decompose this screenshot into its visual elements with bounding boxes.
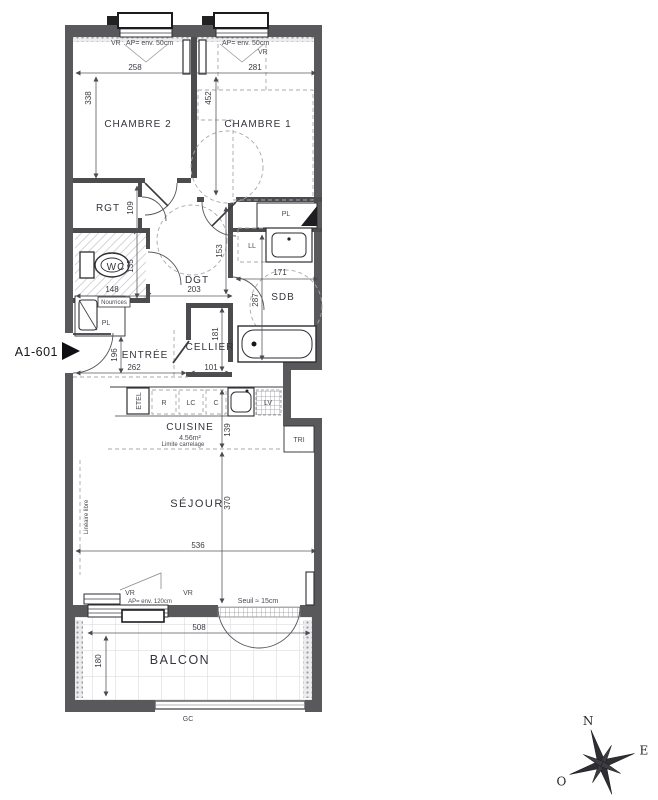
- label-balcon: BALCON: [150, 653, 210, 667]
- wall-bottom-3: [300, 605, 322, 617]
- dim-sejour-width: 536: [191, 541, 205, 550]
- rolling-shutter-box-right: [214, 13, 268, 28]
- label-chambre2: CHAMBRE 2: [104, 119, 171, 130]
- window-tilt-symbol: [120, 573, 161, 590]
- label-cuisine-area: 4.56m²: [179, 435, 201, 442]
- label-lv: LV: [264, 400, 272, 407]
- dim-entree-depth: 196: [110, 348, 119, 362]
- door-leaf-chambre2: [183, 40, 190, 74]
- dim-wc-width: 148: [105, 285, 119, 294]
- dim-entree-width: 262: [127, 363, 141, 372]
- compass-rose: N E O S: [537, 698, 658, 800]
- turning-circle-chambre1: [191, 131, 263, 203]
- dim-balcon-width: 508: [192, 623, 206, 632]
- balcony-wall-bottom-right: [305, 700, 322, 712]
- dim-wc-depth: 135: [126, 259, 135, 273]
- door-leaf-chambre1: [199, 40, 206, 74]
- balcony-door-threshold: [218, 607, 300, 617]
- label-seuil: Seuil ≈ 15cm: [238, 598, 279, 605]
- wall-top-1: [65, 25, 120, 37]
- label-fridge: R: [161, 400, 166, 407]
- door-arc-wc: [148, 252, 181, 285]
- wall-left-upper: [65, 25, 73, 333]
- unit-tag: A1-601: [15, 342, 80, 360]
- wall-left-lower: [65, 373, 73, 617]
- dim-dgt-depth: 153: [215, 244, 224, 258]
- label-lineaire-libre: Linéaire libre: [84, 499, 90, 534]
- dim-chambre2-depth: 338: [84, 91, 93, 105]
- label-wc: WC: [107, 262, 126, 273]
- label-ap50-right: AP= env. 50cm: [222, 40, 269, 47]
- label-vr1: VR: [111, 40, 121, 47]
- window-sill-box: [122, 610, 164, 622]
- label-ap120: AP= env. 120cm: [128, 599, 172, 605]
- washbasin: [272, 233, 306, 257]
- dim-chambre1-depth: 452: [204, 91, 213, 105]
- toilet-tank: [80, 252, 94, 278]
- wall-notch-left: [283, 362, 291, 426]
- dim-chambre2-width: 258: [128, 63, 142, 72]
- label-ll: LL: [248, 243, 256, 250]
- wall-bottom-1: [65, 605, 88, 617]
- dim-rgt-depth: 109: [126, 201, 135, 215]
- turning-circle-dgt: [157, 205, 227, 275]
- compass-o: O: [556, 774, 566, 788]
- dim-sdb-width: 171: [273, 268, 287, 277]
- shutter-end-cap-left: [107, 16, 118, 25]
- washbasin-drain: [287, 237, 290, 240]
- label-vr3: VR: [125, 590, 135, 597]
- label-entree: ENTRÉE: [122, 348, 169, 361]
- dim-balcon-depth: 180: [94, 654, 103, 668]
- label-chambre1: CHAMBRE 1: [224, 119, 291, 130]
- label-pl-entree: PL: [102, 320, 111, 327]
- dim-cuisine-depth: 139: [223, 423, 232, 437]
- balcony-wall-left-insulation: [75, 620, 83, 698]
- label-ap50-left: AP= env. 50cm: [126, 40, 173, 47]
- wall-notch-bottom: [283, 418, 322, 426]
- unit-label: A1-601: [15, 345, 58, 359]
- rolling-shutter-box-left: [118, 13, 172, 28]
- wall-top-2: [172, 25, 216, 37]
- wall-top-3: [268, 25, 322, 37]
- wall-right-lower: [314, 426, 322, 617]
- label-pl-chambre1: PL: [282, 211, 291, 218]
- compass-e: E: [639, 743, 648, 757]
- wall-column: [306, 572, 314, 605]
- label-lc: LC: [187, 400, 196, 407]
- entrance-arrow-icon: [62, 342, 80, 360]
- label-cellier: CELLIER: [186, 342, 235, 353]
- dim-sdb-depth: 287: [251, 293, 260, 307]
- shutter-end-cap-right: [202, 16, 213, 25]
- label-sdb: SDB: [271, 292, 295, 303]
- sink-faucet: [246, 390, 249, 393]
- label-etel: ETEL: [136, 392, 143, 410]
- compass-n: N: [583, 714, 594, 728]
- dim-dgt-width: 203: [187, 285, 201, 294]
- label-cooker: C: [213, 400, 218, 407]
- label-limite-carrelage: Limite carrelage: [162, 442, 205, 448]
- sink-basin: [231, 392, 251, 412]
- balcony-wall-right-insulation: [303, 620, 312, 698]
- floor-plan-page: CHAMBRE 2 CHAMBRE 1 RGT WC DGT SDB ENTRÉ…: [0, 0, 658, 800]
- balcony-wall-bottom-left: [65, 700, 155, 712]
- label-vr2: VR: [258, 49, 268, 56]
- label-cuisine: CUISINE: [166, 422, 214, 433]
- bathtub-drain: [252, 342, 257, 347]
- label-tri: TRI: [293, 437, 304, 444]
- floor-plan: CHAMBRE 2 CHAMBRE 1 RGT WC DGT SDB ENTRÉ…: [0, 0, 658, 800]
- wall-bottom-2: [168, 605, 218, 617]
- dim-cellier-depth: 181: [211, 327, 220, 341]
- dim-sejour-depth: 370: [223, 496, 232, 510]
- label-vr4: VR: [183, 590, 193, 597]
- balcony-wall-right: [312, 617, 322, 712]
- dim-chambre1-width: 281: [248, 63, 262, 72]
- door-arc-entree: [73, 333, 113, 373]
- dim-cellier-width: 101: [204, 363, 218, 372]
- label-gc: GC: [183, 716, 194, 723]
- balcony-wall-left: [65, 617, 75, 712]
- label-nourrices: Nourrices: [101, 300, 127, 306]
- bed-zone-chambre1: [198, 90, 313, 200]
- label-sejour: SÉJOUR: [170, 497, 224, 510]
- label-rgt: RGT: [96, 203, 120, 214]
